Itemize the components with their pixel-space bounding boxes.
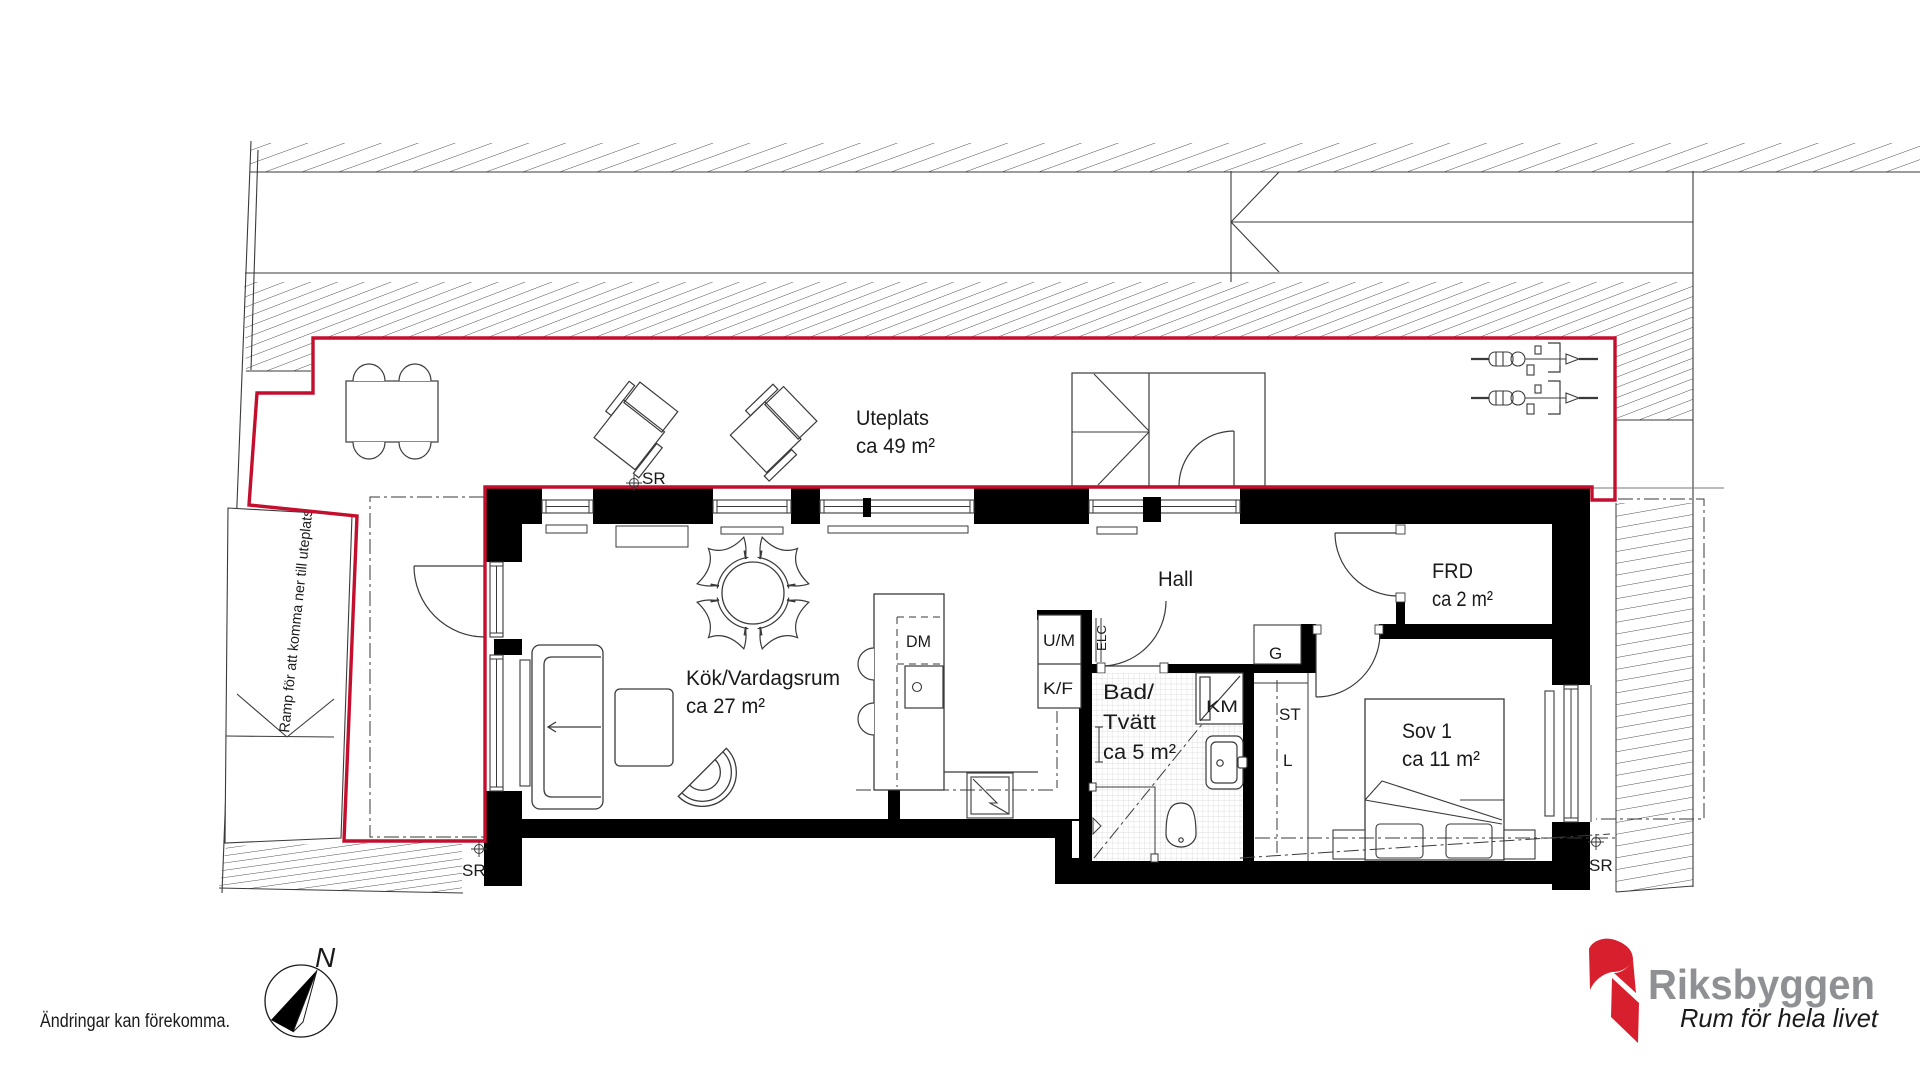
svg-text:ca 49 m²: ca 49 m² (856, 435, 935, 458)
svg-text:Sov 1: Sov 1 (1402, 720, 1452, 743)
svg-text:SR: SR (642, 469, 666, 488)
svg-text:ca 27 m²: ca 27 m² (686, 695, 765, 718)
svg-text:ca 5 m²: ca 5 m² (1103, 741, 1176, 764)
svg-text:Bad/: Bad/ (1103, 681, 1154, 704)
svg-text:KM: KM (1206, 697, 1238, 716)
svg-text:Uteplats: Uteplats (856, 407, 929, 430)
svg-text:FRD: FRD (1432, 560, 1473, 583)
svg-text:Riksbyggen: Riksbyggen (1648, 961, 1875, 1008)
svg-text:U/M: U/M (1043, 631, 1075, 650)
svg-text:DM: DM (906, 632, 931, 651)
svg-text:L: L (1283, 751, 1292, 770)
svg-text:ST: ST (1279, 705, 1301, 724)
svg-text:ELC: ELC (1094, 625, 1109, 651)
svg-text:SR: SR (462, 861, 486, 880)
svg-text:ca 11 m²: ca 11 m² (1402, 748, 1480, 771)
svg-text:N: N (315, 942, 336, 973)
svg-text:Hall: Hall (1158, 568, 1193, 591)
svg-text:Rum för hela livet: Rum för hela livet (1680, 1003, 1880, 1033)
svg-text:ca 2 m²: ca 2 m² (1432, 588, 1493, 611)
svg-text:Tvätt: Tvätt (1103, 711, 1156, 734)
svg-text:G: G (1269, 644, 1282, 663)
svg-text:Kök/Vardagsrum: Kök/Vardagsrum (686, 667, 840, 690)
svg-text:K/F: K/F (1043, 679, 1073, 698)
svg-text:SR: SR (1589, 856, 1613, 875)
svg-text:Ändringar kan förekomma.: Ändringar kan förekomma. (40, 1011, 230, 1032)
